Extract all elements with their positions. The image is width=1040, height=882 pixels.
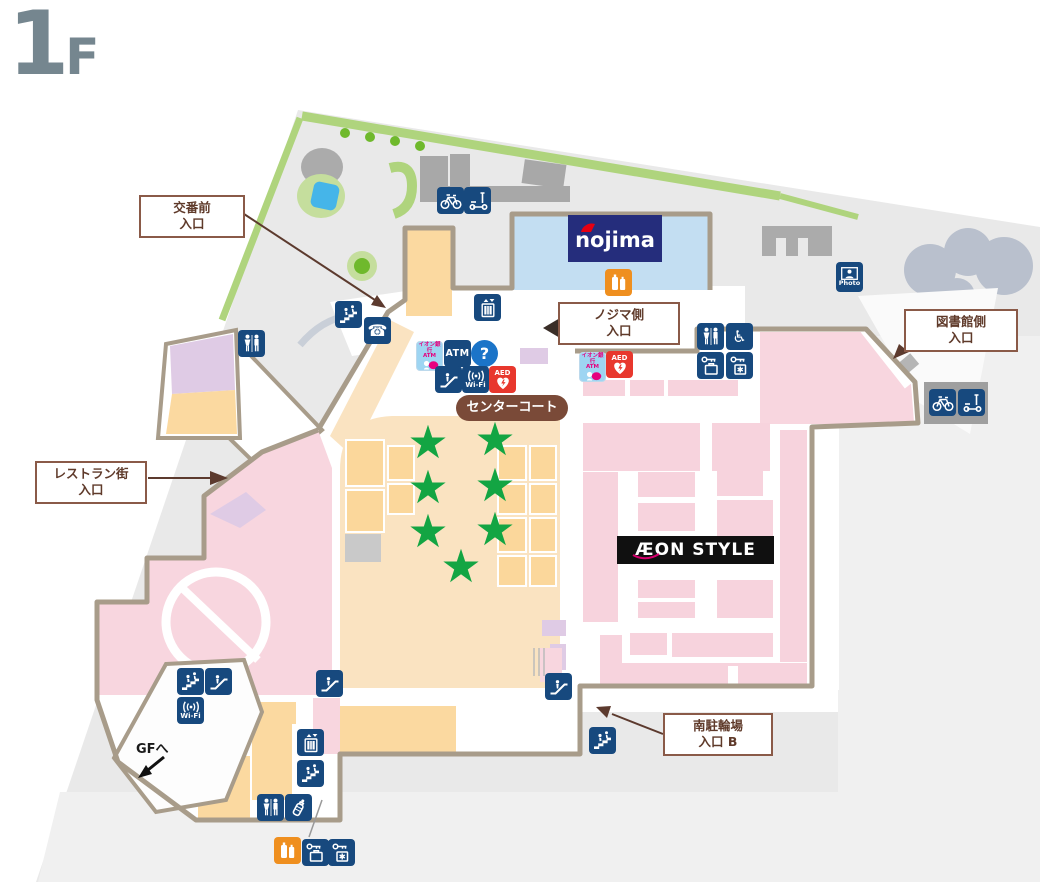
cold-locker-south-icon bbox=[328, 839, 355, 866]
aeon-bank-atm-east-icon: イオン銀行ATM bbox=[579, 352, 606, 382]
floor-suffix: F bbox=[65, 28, 99, 86]
center-court-label: センターコート bbox=[456, 395, 568, 421]
wifi-southwest-icon: Wi-Fi bbox=[177, 697, 204, 724]
aed-center-icon: AED bbox=[489, 366, 516, 393]
escalator-midsouth-icon bbox=[316, 670, 343, 697]
aeon-style-logo: ÆON STYLE bbox=[617, 536, 774, 564]
east-scooter-parking-icon bbox=[958, 389, 985, 416]
floor-title: 1F bbox=[8, 0, 99, 95]
elevator-north-icon bbox=[474, 294, 501, 321]
toilet-south-icon bbox=[257, 794, 284, 821]
escalator-southeast-icon bbox=[545, 673, 572, 700]
north-bicycle-parking-icon bbox=[437, 187, 464, 214]
nojima-store-logo: nojima bbox=[568, 215, 662, 262]
floor-number: 1 bbox=[8, 0, 65, 95]
baby-room-icon bbox=[285, 794, 312, 821]
wifi-center-icon: Wi-Fi bbox=[462, 366, 489, 393]
event-star-icon: ★ bbox=[440, 543, 481, 589]
nojima-flag-icon bbox=[580, 221, 596, 233]
escalator-center-icon bbox=[435, 366, 462, 393]
coin-locker-south-icon bbox=[302, 839, 329, 866]
accessible-toilet-east-icon: ♿ bbox=[726, 323, 753, 350]
escalator-southwest-icon bbox=[205, 668, 232, 695]
label-koban-entrance: 交番前 入口 bbox=[139, 195, 245, 238]
event-star-icon: ★ bbox=[407, 419, 448, 465]
stairs-northwest-icon bbox=[335, 301, 362, 328]
toilet-northwest-icon bbox=[238, 330, 265, 357]
label-library-side-entrance: 図書館側 入口 bbox=[904, 309, 1018, 352]
photo-spot-icon: Photo bbox=[836, 262, 863, 292]
label-nojima-side-entrance: ノジマ側 入口 bbox=[558, 302, 680, 345]
pond-water bbox=[310, 181, 341, 212]
stairs-south-bicycle-icon bbox=[589, 727, 616, 754]
toilet-east-icon bbox=[697, 323, 724, 350]
atm-center-icon: ATM bbox=[444, 340, 471, 367]
public-phone-icon: ☎ bbox=[364, 317, 391, 344]
vending-south-icon bbox=[274, 837, 301, 864]
aeon-swoosh-icon bbox=[631, 553, 661, 561]
north-scooter-parking-icon bbox=[464, 187, 491, 214]
stairs-south-icon bbox=[297, 760, 324, 787]
mall-floor-map-1f: 1F 交番前 入口 ノジマ側 入口 図書館側 入口 レストラン街 入口 南駐輪場… bbox=[0, 0, 1040, 882]
label-south-bicycle-entrance: 南駐輪場 入口 B bbox=[663, 713, 773, 756]
east-bicycle-parking-icon bbox=[929, 389, 956, 416]
coin-locker-east-icon bbox=[697, 352, 724, 379]
elevator-south-icon bbox=[297, 729, 324, 756]
vending-nojima-icon bbox=[605, 269, 632, 296]
to-gf-label: GFへ bbox=[136, 738, 169, 757]
label-restaurant-street-entrance: レストラン街 入口 bbox=[35, 461, 147, 504]
cold-locker-east-icon bbox=[726, 352, 753, 379]
information-icon: ? bbox=[471, 340, 498, 367]
stairs-southwest-icon bbox=[177, 668, 204, 695]
event-star-icon: ★ bbox=[474, 416, 515, 462]
aed-east-icon: AED bbox=[606, 351, 633, 378]
